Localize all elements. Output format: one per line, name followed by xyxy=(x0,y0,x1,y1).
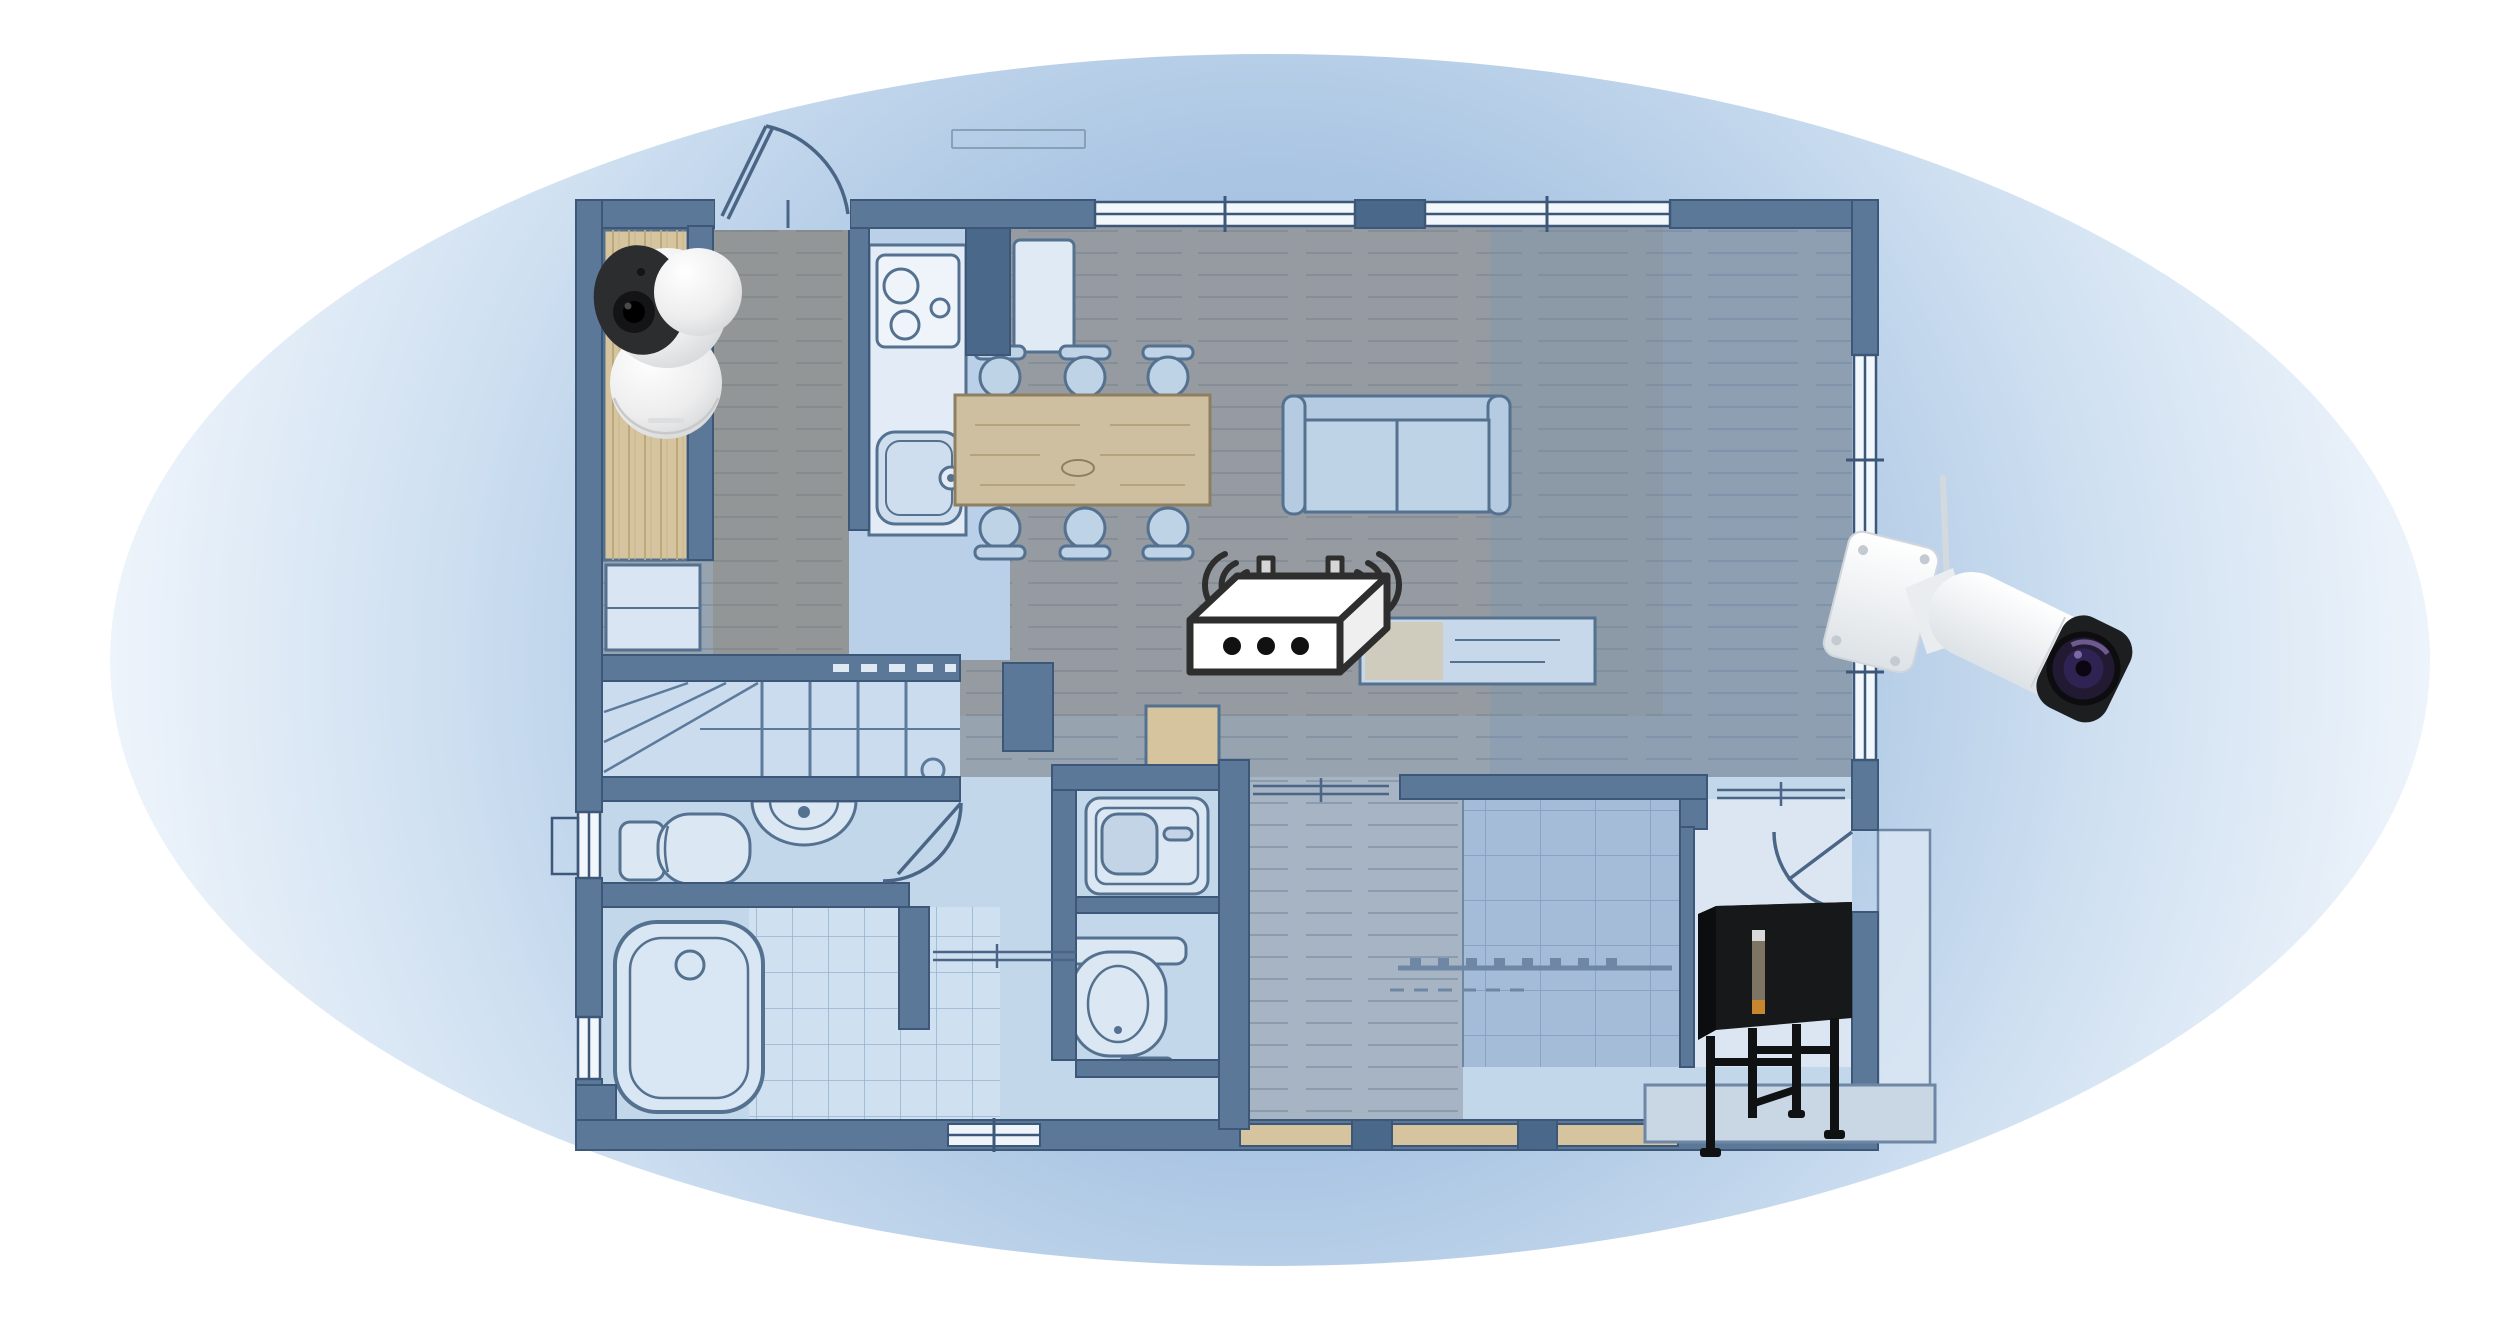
entrance-door-arc xyxy=(766,126,848,214)
camera-body xyxy=(1911,550,2140,730)
sofa xyxy=(1283,396,1510,514)
walls xyxy=(576,200,1878,1152)
entry-closet xyxy=(604,230,688,560)
box-front xyxy=(1716,902,1852,1030)
bay-window-line xyxy=(952,130,1085,148)
camera-hood xyxy=(2028,607,2140,730)
camera-face xyxy=(585,238,695,362)
camera-antenna xyxy=(1943,478,1947,586)
router-top xyxy=(1190,576,1387,620)
wifi-coverage-illustration xyxy=(0,0,2507,1317)
kitchen-floor xyxy=(849,228,1010,660)
corridor-floor xyxy=(1249,777,1463,1129)
toilet xyxy=(658,814,750,884)
signal-arcs-left xyxy=(1205,554,1247,616)
delivery-box-icon xyxy=(1698,902,1852,1157)
porch-step xyxy=(1645,1085,1935,1142)
router-side xyxy=(1340,576,1387,672)
kitchen-sink xyxy=(877,432,961,524)
washbasin-unit xyxy=(1086,798,1208,894)
doors xyxy=(715,126,1852,968)
wifi-router-icon xyxy=(1190,554,1399,672)
fixtures xyxy=(604,230,1672,1112)
antenna-right xyxy=(1328,558,1342,622)
indoor-camera-icon xyxy=(585,238,742,439)
camera-lens-glass xyxy=(2057,642,2110,695)
camera-arm xyxy=(1905,568,1975,654)
toilet-tank xyxy=(620,822,664,880)
box-panel xyxy=(1752,930,1765,1014)
entrance-door-leaf xyxy=(722,126,772,219)
sliding-doors xyxy=(933,778,1845,968)
outdoor-camera-icon xyxy=(1821,478,2141,730)
genkan-floor xyxy=(1694,799,1852,1067)
bathtub xyxy=(615,922,763,1112)
hall-closet xyxy=(1146,706,1219,778)
toilet-door-arc xyxy=(883,803,961,881)
wifi-coverage-ellipse xyxy=(110,54,2430,1266)
camera-lens xyxy=(613,291,655,333)
wood-tint xyxy=(713,226,1663,716)
vanity-basin xyxy=(752,801,856,845)
stove xyxy=(877,255,959,347)
coffee-table xyxy=(1360,618,1595,684)
camera-base-sphere xyxy=(610,327,722,439)
genkan-door-arc xyxy=(1774,832,1852,910)
toilet-2 xyxy=(1066,938,1186,1072)
kitchen-counter xyxy=(869,245,966,535)
box-side xyxy=(1698,906,1716,1040)
windows xyxy=(552,130,1884,1079)
signal-arcs-right xyxy=(1357,554,1399,616)
camera-head-sphere xyxy=(607,248,727,368)
floors xyxy=(602,226,1852,1129)
antenna-left xyxy=(1259,558,1273,622)
stairs xyxy=(602,681,960,781)
dining-chairs xyxy=(975,346,1193,559)
side-porch xyxy=(1878,830,1930,1085)
box-legs xyxy=(1700,1018,1845,1157)
floor-plan xyxy=(552,126,1935,1152)
shower-tiles xyxy=(749,907,1000,1125)
router-front xyxy=(1190,620,1340,672)
shoe-cabinet xyxy=(606,565,700,650)
tatami-floor xyxy=(1463,799,1680,1067)
closet-rail xyxy=(1390,958,1672,990)
mount-plate xyxy=(1821,529,1941,675)
dining-table xyxy=(955,395,1210,505)
floorplan-scene xyxy=(0,0,2507,1317)
refrigerator xyxy=(1014,240,1074,352)
